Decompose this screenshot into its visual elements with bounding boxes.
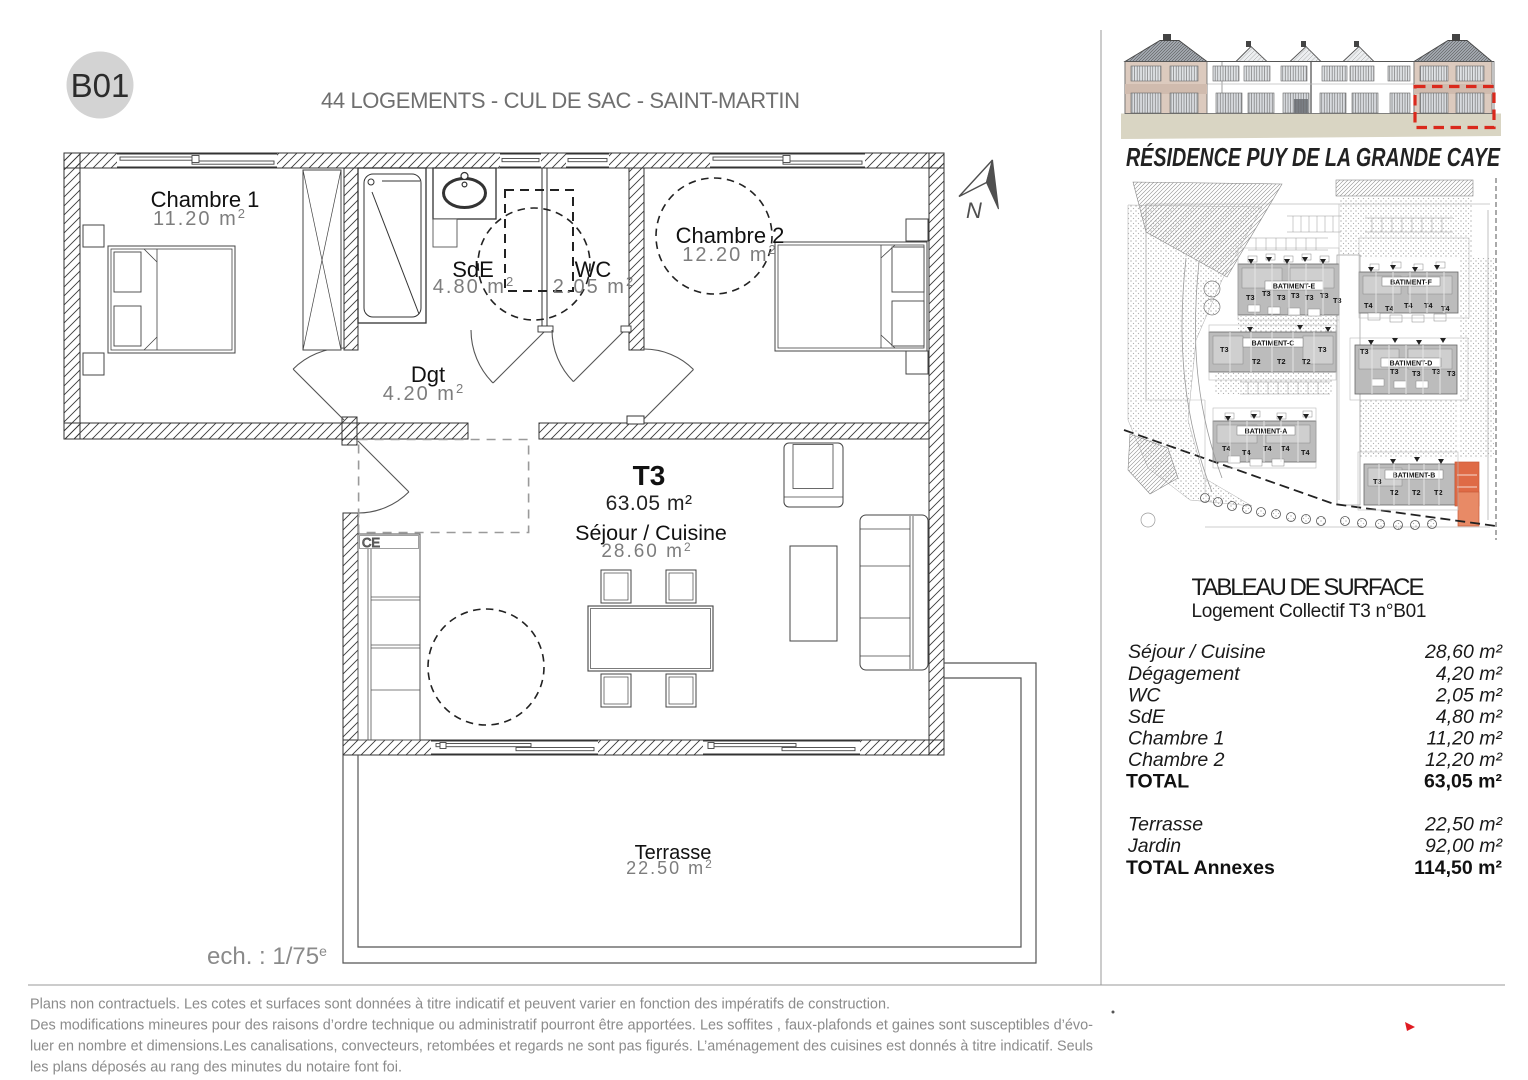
- svg-text:Logement Collectif T3 n°B01: Logement Collectif T3 n°B01: [1192, 601, 1427, 622]
- svg-text:T3: T3: [1333, 296, 1342, 305]
- svg-text:114,50 m²: 114,50 m²: [1414, 857, 1502, 879]
- svg-text:T3: T3: [1262, 289, 1271, 298]
- svg-text:TOTAL: TOTAL: [1126, 771, 1189, 793]
- svg-text:T3: T3: [1432, 367, 1441, 376]
- svg-text:T3: T3: [1320, 291, 1329, 300]
- svg-text:T4: T4: [1404, 301, 1413, 310]
- svg-text:T2: T2: [1302, 357, 1311, 366]
- svg-text:TABLEAU DE SURFACE: TABLEAU DE SURFACE: [1192, 574, 1425, 601]
- svg-text:CE: CE: [362, 535, 380, 550]
- svg-text:Terrasse: Terrasse: [1128, 814, 1203, 836]
- svg-text:4.80 m2: 4.80 m2: [433, 274, 515, 298]
- svg-text:Plans non contractuels. Les co: Plans non contractuels. Les cotes et sur…: [30, 997, 890, 1013]
- svg-text:T2: T2: [1412, 488, 1421, 497]
- svg-text:BATIMENT-F: BATIMENT-F: [1390, 280, 1433, 287]
- svg-text:4.20 m2: 4.20 m2: [383, 381, 465, 405]
- svg-text:11.20 m2: 11.20 m2: [153, 206, 247, 230]
- svg-text:28,60 m²: 28,60 m²: [1424, 641, 1503, 663]
- svg-text:28.60 m2: 28.60 m2: [601, 540, 692, 562]
- svg-text:12,20 m²: 12,20 m²: [1425, 749, 1503, 771]
- svg-text:2,05 m²: 2,05 m²: [1435, 685, 1504, 707]
- svg-text:T2: T2: [1434, 488, 1443, 497]
- svg-text:T4: T4: [1364, 301, 1373, 310]
- svg-text:11,20 m²: 11,20 m²: [1426, 728, 1503, 750]
- svg-text:Séjour / Cuisine: Séjour / Cuisine: [1128, 641, 1266, 663]
- svg-text:T3: T3: [1390, 367, 1399, 376]
- svg-text:luer en nombre et dimensions.L: luer en nombre et dimensions.Les canalis…: [30, 1039, 1093, 1055]
- svg-text:Dégagement: Dégagement: [1128, 663, 1241, 685]
- svg-text:22.50 m2: 22.50 m2: [626, 857, 714, 878]
- svg-text:T3: T3: [1412, 369, 1421, 378]
- svg-text:SdE: SdE: [1128, 706, 1166, 728]
- svg-text:T3: T3: [1318, 345, 1327, 354]
- svg-text:63.05 m²: 63.05 m²: [606, 492, 693, 515]
- svg-text:T2: T2: [1277, 357, 1286, 366]
- svg-text:ech. : 1/75e: ech. : 1/75e: [207, 943, 327, 970]
- svg-text:2.05 m2: 2.05 m2: [553, 274, 635, 298]
- svg-text:63,05 m²: 63,05 m²: [1424, 771, 1503, 793]
- svg-text:WC: WC: [1128, 685, 1161, 707]
- svg-text:12.20 m2: 12.20 m2: [682, 242, 778, 266]
- svg-text:T3: T3: [633, 460, 666, 491]
- svg-text:T3: T3: [1246, 293, 1255, 302]
- svg-text:T3: T3: [1277, 293, 1286, 302]
- svg-text:T4: T4: [1281, 444, 1290, 453]
- svg-text:T4: T4: [1424, 301, 1433, 310]
- svg-text:Des modifications mineures pou: Des modifications mineures pour des rais…: [30, 1018, 1093, 1034]
- svg-text:Chambre 2: Chambre 2: [1128, 749, 1225, 771]
- svg-text:BATIMENT-E: BATIMENT-E: [1273, 284, 1316, 291]
- svg-text:B01: B01: [71, 67, 130, 104]
- svg-text:BATIMENT-B: BATIMENT-B: [1393, 473, 1436, 480]
- svg-text:T3: T3: [1220, 345, 1229, 354]
- svg-text:T3: T3: [1360, 347, 1369, 356]
- svg-text:4,20 m²: 4,20 m²: [1436, 663, 1504, 685]
- svg-text:BATIMENT-C: BATIMENT-C: [1252, 341, 1295, 348]
- svg-text:T3: T3: [1447, 369, 1456, 378]
- svg-text:44 LOGEMENTS - CUL DE SAC - SA: 44 LOGEMENTS - CUL DE SAC - SAINT-MARTIN: [321, 88, 801, 113]
- svg-text:T2: T2: [1252, 357, 1261, 366]
- svg-text:4,80 m²: 4,80 m²: [1436, 706, 1504, 728]
- svg-text:Jardin: Jardin: [1127, 835, 1181, 857]
- svg-text:Chambre 1: Chambre 1: [1128, 728, 1224, 750]
- svg-text:N: N: [966, 198, 982, 223]
- svg-text:92,00 m²: 92,00 m²: [1425, 835, 1503, 857]
- svg-text:22,50 m²: 22,50 m²: [1424, 814, 1503, 836]
- svg-text:T3: T3: [1291, 291, 1300, 300]
- svg-text:TOTAL Annexes: TOTAL Annexes: [1126, 857, 1275, 879]
- svg-text:T3: T3: [1373, 477, 1382, 486]
- svg-text:T4: T4: [1441, 304, 1450, 313]
- svg-text:les plans déposés au rang des: les plans déposés au rang des minutes du…: [30, 1060, 402, 1076]
- svg-text:T4: T4: [1301, 448, 1310, 457]
- svg-text:RÉSIDENCE PUY DE LA GRANDE CAY: RÉSIDENCE PUY DE LA GRANDE CAYE: [1126, 142, 1500, 172]
